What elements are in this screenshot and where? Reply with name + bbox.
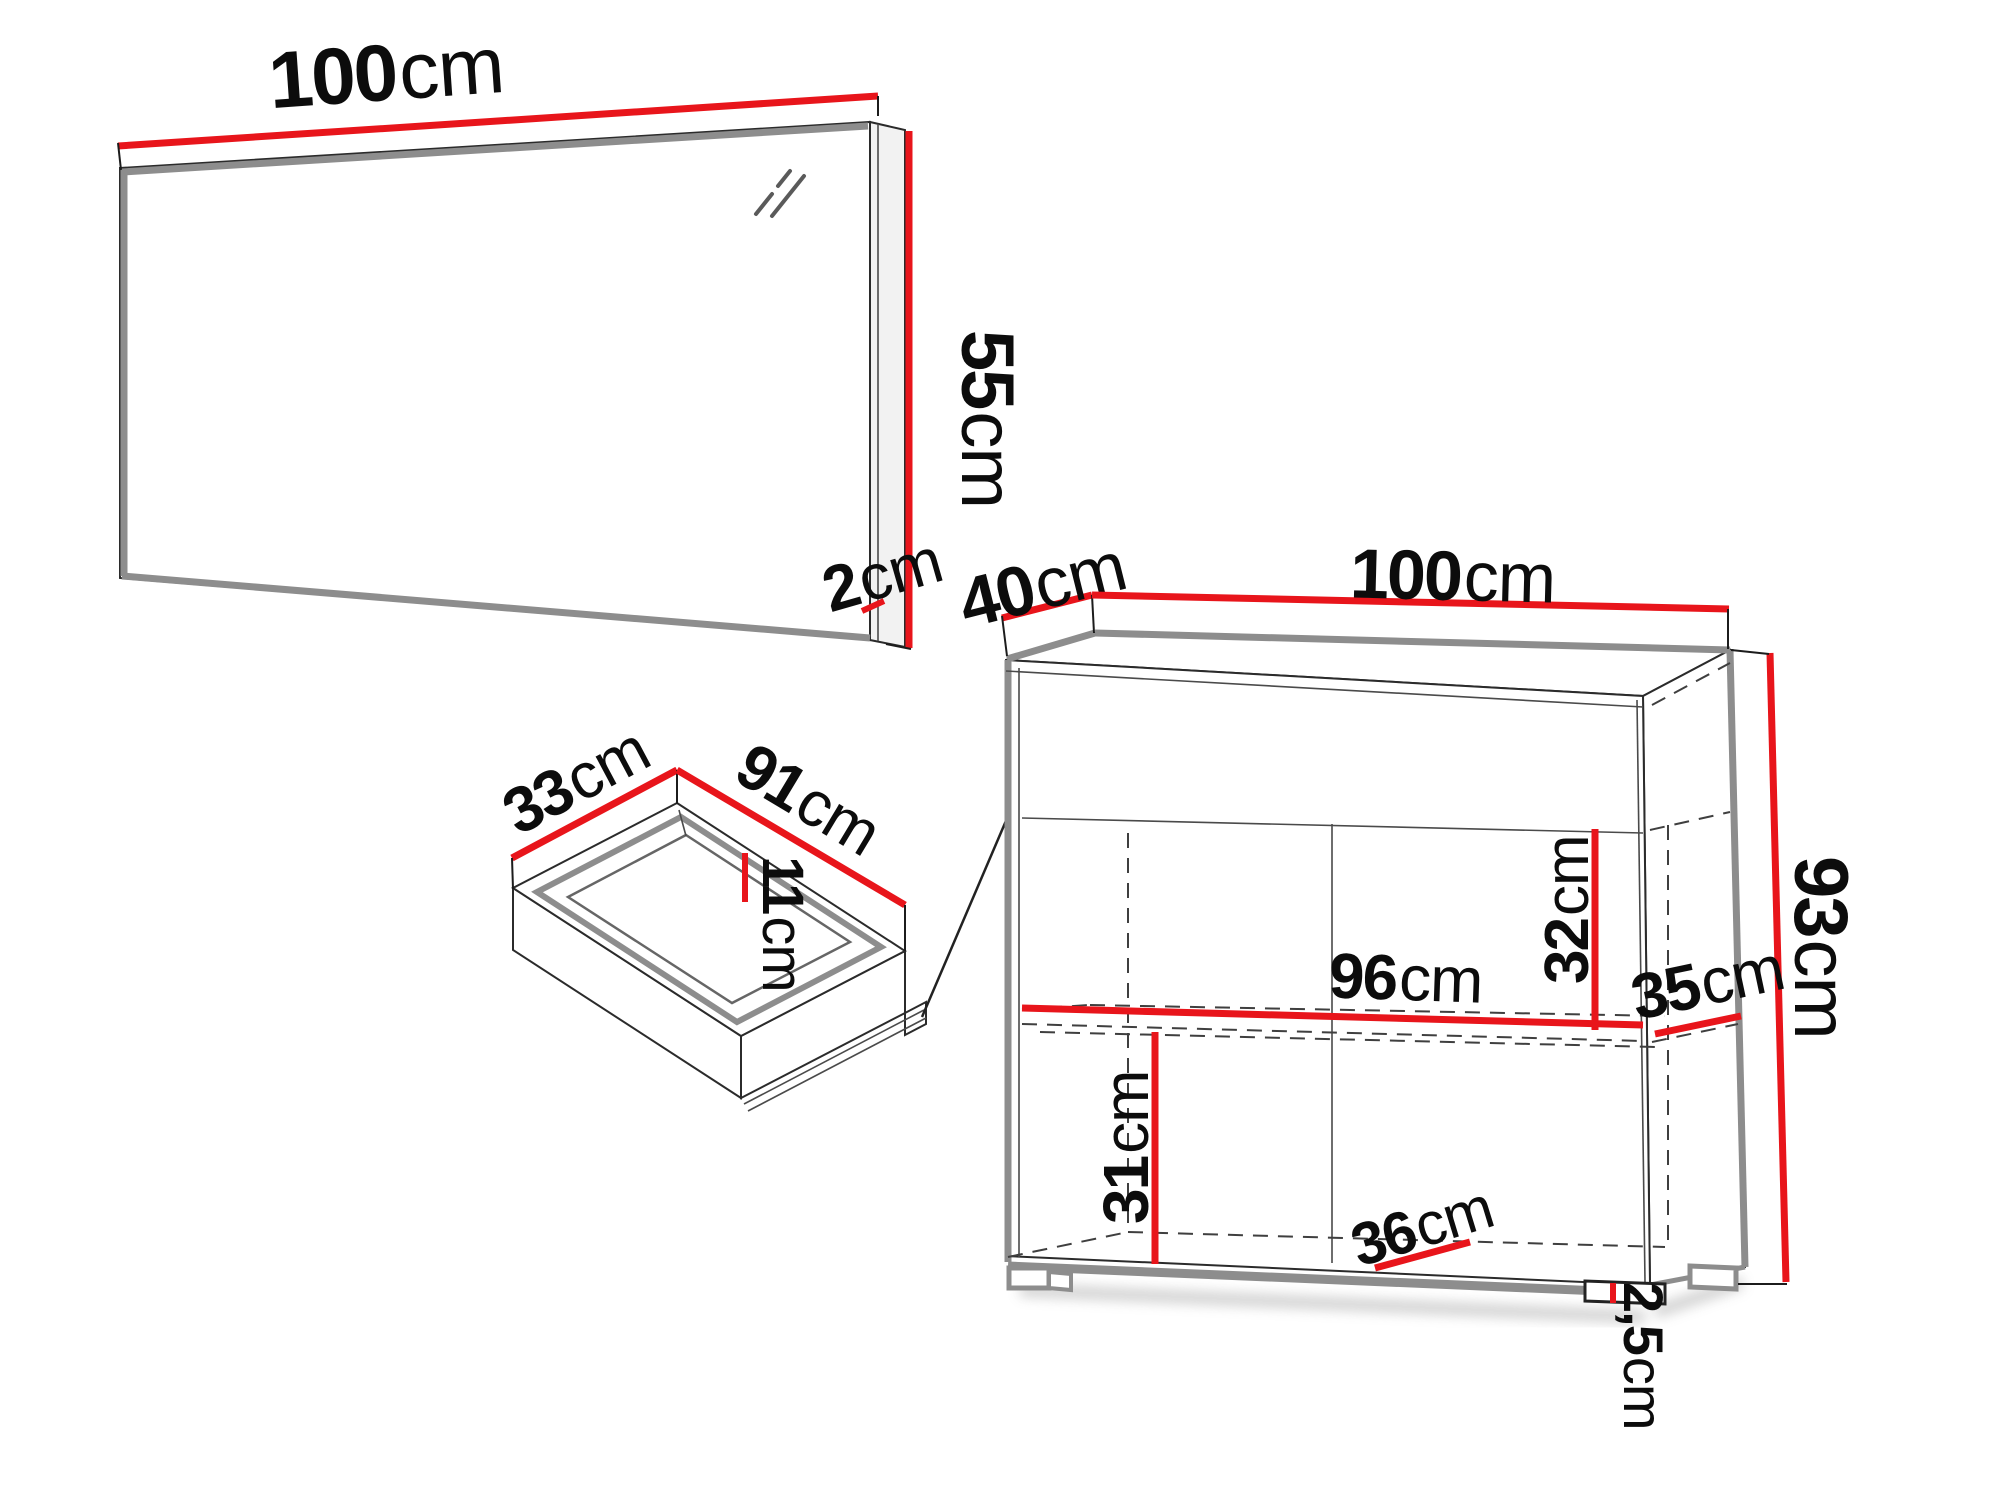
cabinet-foot-back-right [1690,1266,1736,1289]
cabinet-inner-width-label: 96cm [1328,939,1484,1016]
cabinet-foot-front-left-side [1049,1272,1071,1290]
cabinet-diagram: 40cm 100cm 93cm 32cm 96cm 35cm [951,527,1863,1430]
cabinet-lower-inner-height-label: 31cm [1090,1071,1162,1225]
cabinet-width-label: 100cm [1349,534,1556,617]
furniture-dimensions-diagram: 100cm 55cm 2cm 33cm [0,0,2000,1500]
cabinet-upper-inner-height-label: 32cm [1533,835,1602,984]
cabinet-height-label: 93cm [1778,856,1863,1039]
mirror-width-label: 100cm [266,20,507,125]
cabinet-height-tick-top [1731,650,1769,654]
mirror-diagram: 100cm 55cm 2cm [118,20,1029,649]
drawer-diagram: 33cm 91cm 11cm [491,713,926,1111]
cabinet-foot-front-left [1009,1268,1049,1288]
drawer-height-label: 11cm [750,856,815,992]
mirror-height-label: 55cm [946,330,1029,508]
mirror-glass [120,122,870,640]
cabinet-leg-height-label: 2,5cm [1612,1282,1675,1430]
drawer-depth-tick [512,858,513,889]
cabinet-depth-label: 40cm [951,527,1133,643]
